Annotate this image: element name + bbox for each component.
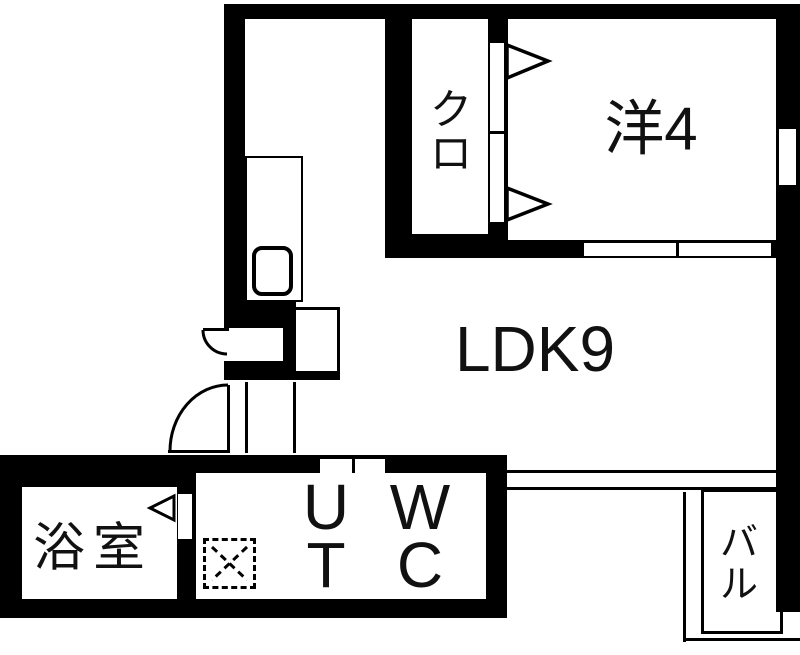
entry-door-leaf-open [227, 385, 230, 451]
wall-right [776, 4, 800, 612]
bathroom-door-swing-arrow-icon [150, 496, 174, 520]
wall-top [224, 4, 800, 19]
entry-door-leaf-closed [168, 450, 230, 453]
wall-service-left [0, 455, 22, 618]
washing-machine-x-icon [206, 541, 253, 586]
utility-sliding-panel-2 [355, 459, 385, 473]
refrigerator-space [290, 307, 340, 374]
sliding-window-top-rail [507, 470, 776, 473]
wall-window [779, 129, 796, 185]
closet-door-swing-arrow-bottom-icon [507, 188, 548, 220]
balcony-rail-left [683, 492, 686, 642]
wall-service-right [486, 455, 507, 618]
wall-closet-left [385, 19, 412, 258]
kitchen-sink [252, 246, 293, 296]
room-label-ldk: LDK9 [455, 312, 615, 386]
entry-step-line-2 [293, 382, 296, 453]
closet-door-panel-1 [490, 43, 504, 131]
washing-machine-space [203, 538, 256, 589]
wall-bathroom-top [0, 473, 196, 487]
floor-plan: ク ロ 洋4 LDK9 浴室 U T W C バ ル [0, 0, 800, 655]
entry-door-swing-arc [170, 385, 228, 451]
room-label-toilet: W C [390, 478, 450, 594]
sliding-window-bottom-rail [507, 487, 776, 490]
entry-step-line-1 [245, 382, 248, 453]
room-label-balcony: バ ル [720, 522, 758, 606]
sliding-door-panel-1 [584, 243, 676, 256]
sliding-door-panel-2 [679, 243, 771, 256]
room-label-utility: U T [303, 478, 349, 594]
room-label-western-room: 洋4 [604, 81, 697, 168]
wall-kitchen-block-band [296, 374, 340, 380]
closet-door-swing-arrow-top-icon [507, 45, 548, 78]
service-door-opening [224, 328, 283, 361]
wall-service-bottom [0, 599, 507, 618]
balcony-rail-bottom [683, 638, 800, 641]
closet-door-panel-2 [490, 134, 504, 222]
room-label-closet: ク ロ [430, 88, 472, 176]
service-door-leaf [203, 328, 229, 331]
bathroom-door-panel [178, 494, 192, 539]
room-label-bathroom: 浴室 [33, 506, 153, 581]
